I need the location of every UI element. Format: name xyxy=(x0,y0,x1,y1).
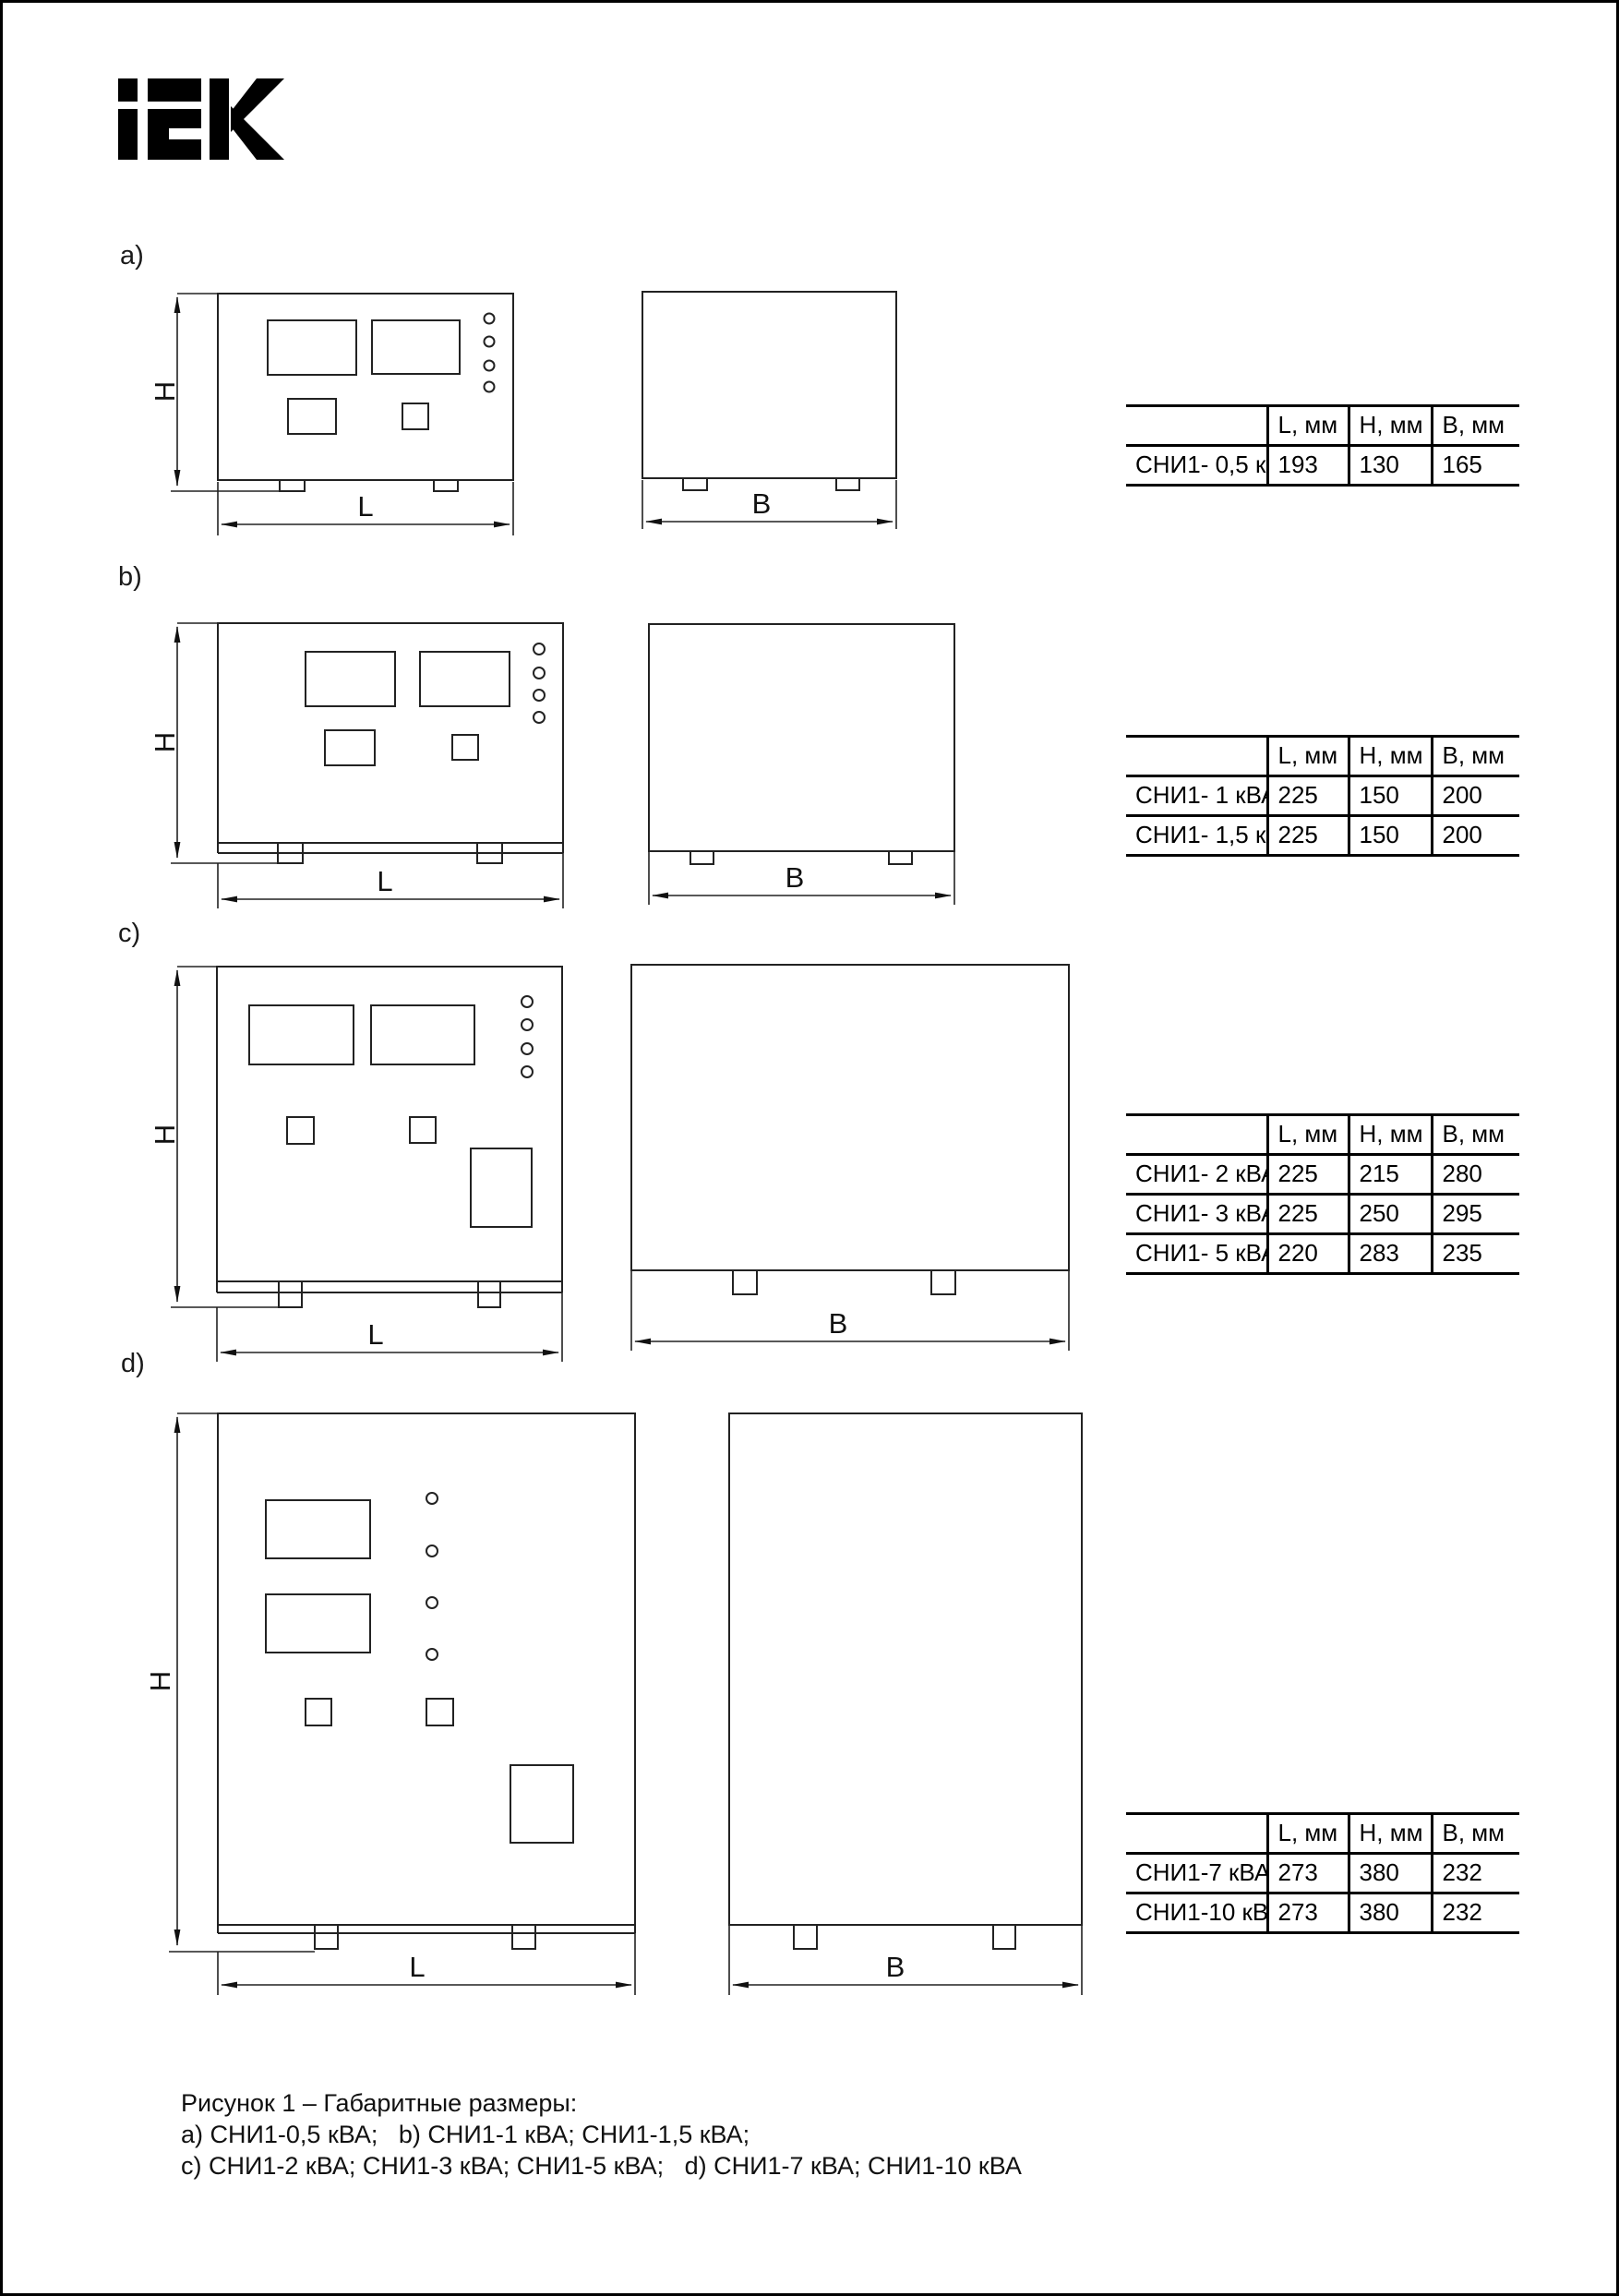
display-window xyxy=(371,1005,474,1064)
h-dimension xyxy=(169,1413,315,1952)
control-button xyxy=(452,735,478,760)
col-header-b: B, мм xyxy=(1432,406,1519,446)
cabinet-body xyxy=(631,965,1069,1270)
cabinet-base xyxy=(217,1281,562,1292)
table-row: СНИ1- 0,5 кВА 193 130 165 xyxy=(1126,446,1519,486)
value-b: 232 xyxy=(1432,1854,1519,1893)
display-window xyxy=(420,652,510,706)
model-name: СНИ1- 0,5 кВА xyxy=(1126,446,1267,486)
h-dim-label: H xyxy=(149,381,181,402)
col-header-h: H, мм xyxy=(1349,1115,1432,1155)
cabinet-body xyxy=(217,967,562,1281)
cabinet-foot xyxy=(931,1270,955,1294)
l-dimension xyxy=(217,1292,562,1362)
indicator-leds xyxy=(426,1493,438,1660)
cabinet-body xyxy=(218,623,563,843)
table-header-row: L, мм H, мм B, мм xyxy=(1126,406,1519,446)
value-l: 273 xyxy=(1267,1854,1349,1893)
model-name: СНИ1- 5 кВА xyxy=(1126,1234,1267,1274)
l-dimension xyxy=(218,1933,635,1995)
col-header-b: B, мм xyxy=(1432,1814,1519,1854)
value-l: 225 xyxy=(1267,1155,1349,1195)
model-name: СНИ1- 2 кВА xyxy=(1126,1155,1267,1195)
value-h: 130 xyxy=(1349,446,1432,486)
cabinet-foot xyxy=(315,1925,338,1949)
value-b: 295 xyxy=(1432,1195,1519,1234)
b-dimension xyxy=(729,1925,1082,1995)
cabinet-foot xyxy=(794,1925,817,1949)
dim-table-c: L, мм H, мм B, мм СНИ1- 2 кВА 225 215 28… xyxy=(1126,1113,1519,1275)
value-b: 200 xyxy=(1432,776,1519,816)
model-name: СНИ1-7 кВА xyxy=(1126,1854,1267,1893)
cabinet-foot xyxy=(836,478,859,490)
cabinet-foot xyxy=(434,480,458,491)
figure-d-side-view xyxy=(729,1413,1082,1995)
value-l: 193 xyxy=(1267,446,1349,486)
control-button xyxy=(410,1117,436,1143)
value-h: 380 xyxy=(1349,1854,1432,1893)
cabinet-foot xyxy=(683,478,707,490)
value-h: 250 xyxy=(1349,1195,1432,1234)
display-window xyxy=(249,1005,354,1064)
figure-c-side-view xyxy=(631,965,1069,1351)
value-h: 150 xyxy=(1349,776,1432,816)
figure-caption: Рисунок 1 – Габаритные размеры: а) СНИ1-… xyxy=(181,2087,1022,2182)
col-header-l: L, мм xyxy=(1267,406,1349,446)
cabinet-body xyxy=(729,1413,1082,1925)
value-b: 165 xyxy=(1432,446,1519,486)
dim-table-b: L, мм H, мм B, мм СНИ1- 1 кВА 225 150 20… xyxy=(1126,735,1519,857)
cabinet-body xyxy=(218,294,513,480)
table-row: СНИ1- 1 кВА 225 150 200 xyxy=(1126,776,1519,816)
table-header-row: L, мм H, мм B, мм xyxy=(1126,1115,1519,1155)
value-b: 232 xyxy=(1432,1893,1519,1933)
col-header-b: B, мм xyxy=(1432,737,1519,776)
value-h: 150 xyxy=(1349,816,1432,856)
caption-line-2: а) СНИ1-0,5 кВА; b) СНИ1-1 кВА; СНИ1-1,5… xyxy=(181,2119,1022,2150)
b-dim-label: B xyxy=(786,861,805,894)
l-dim-label: L xyxy=(377,865,392,897)
value-l: 225 xyxy=(1267,816,1349,856)
model-name: СНИ1- 3 кВА xyxy=(1126,1195,1267,1234)
cabinet-foot xyxy=(889,851,912,864)
cabinet-base xyxy=(218,1925,635,1933)
col-header-b: B, мм xyxy=(1432,1115,1519,1155)
corner-cell xyxy=(1126,1814,1267,1854)
dim-table-d: L, мм H, мм B, мм СНИ1-7 кВА 273 380 232… xyxy=(1126,1812,1519,1934)
connector-block xyxy=(471,1148,532,1227)
col-header-h: H, мм xyxy=(1349,406,1432,446)
figure-d-front-view xyxy=(169,1413,635,1995)
value-h: 380 xyxy=(1349,1893,1432,1933)
l-dim-label: L xyxy=(357,490,373,523)
h-dimension xyxy=(171,967,279,1307)
b-dimension xyxy=(631,1270,1069,1351)
h-dimension xyxy=(171,623,278,863)
cabinet-foot xyxy=(512,1925,535,1949)
b-dim-label: B xyxy=(829,1307,848,1340)
value-b: 280 xyxy=(1432,1155,1519,1195)
control-button xyxy=(402,403,428,429)
value-b: 235 xyxy=(1432,1234,1519,1274)
control-button xyxy=(306,1699,331,1725)
cabinet-base xyxy=(218,843,563,853)
value-l: 225 xyxy=(1267,1195,1349,1234)
l-dim-label: L xyxy=(409,1951,425,1983)
col-header-l: L, мм xyxy=(1267,1115,1349,1155)
h-dim-label: H xyxy=(144,1671,176,1691)
cabinet-foot xyxy=(280,480,305,491)
col-header-l: L, мм xyxy=(1267,737,1349,776)
corner-cell xyxy=(1126,1115,1267,1155)
value-l: 273 xyxy=(1267,1893,1349,1933)
cabinet-foot xyxy=(690,851,714,864)
col-header-h: H, мм xyxy=(1349,737,1432,776)
display-window xyxy=(306,652,395,706)
cabinet-foot xyxy=(478,1281,500,1307)
table-row: СНИ1-10 кВА 273 380 232 xyxy=(1126,1893,1519,1933)
value-l: 225 xyxy=(1267,776,1349,816)
model-name: СНИ1- 1,5 кВА xyxy=(1126,816,1267,856)
corner-cell xyxy=(1126,406,1267,446)
control-button xyxy=(426,1699,453,1725)
col-header-l: L, мм xyxy=(1267,1814,1349,1854)
cabinet-foot xyxy=(993,1925,1015,1949)
cabinet-body xyxy=(642,292,896,478)
connector-block xyxy=(510,1765,573,1843)
table-row: СНИ1- 5 кВА 220 283 235 xyxy=(1126,1234,1519,1274)
indicator-leds xyxy=(534,643,545,723)
display-window xyxy=(268,320,356,375)
control-button xyxy=(325,730,375,765)
control-button xyxy=(287,1117,314,1144)
model-name: СНИ1-10 кВА xyxy=(1126,1893,1267,1933)
value-h: 215 xyxy=(1349,1155,1432,1195)
model-name: СНИ1- 1 кВА xyxy=(1126,776,1267,816)
cabinet-body xyxy=(218,1413,635,1925)
indicator-leds xyxy=(485,314,495,392)
h-dim-label: H xyxy=(149,732,181,752)
display-window xyxy=(266,1500,370,1558)
dim-table-a: L, мм H, мм B, мм СНИ1- 0,5 кВА 193 130 … xyxy=(1126,404,1519,487)
caption-line-3: c) СНИ1-2 кВА; СНИ1-3 кВА; СНИ1-5 кВА; d… xyxy=(181,2150,1022,2182)
indicator-leds xyxy=(522,996,533,1077)
value-b: 200 xyxy=(1432,816,1519,856)
corner-cell xyxy=(1126,737,1267,776)
cabinet-foot xyxy=(733,1270,757,1294)
display-window xyxy=(372,320,460,374)
cabinet-foot xyxy=(279,1281,302,1307)
figure-c-front-view xyxy=(171,967,562,1362)
cabinet-body xyxy=(649,624,954,851)
figure-b-front-view xyxy=(171,623,563,908)
table-row: СНИ1- 1,5 кВА 225 150 200 xyxy=(1126,816,1519,856)
catalog-page: a) b) c) d) xyxy=(0,0,1619,2296)
l-dim-label: L xyxy=(367,1318,383,1351)
display-window xyxy=(266,1594,370,1653)
caption-line-1: Рисунок 1 – Габаритные размеры: xyxy=(181,2087,1022,2119)
table-header-row: L, мм H, мм B, мм xyxy=(1126,737,1519,776)
col-header-h: H, мм xyxy=(1349,1814,1432,1854)
h-dimension xyxy=(171,294,280,491)
h-dim-label: H xyxy=(149,1124,181,1145)
table-header-row: L, мм H, мм B, мм xyxy=(1126,1814,1519,1854)
b-dim-label: B xyxy=(752,487,772,520)
table-row: СНИ1- 3 кВА 225 250 295 xyxy=(1126,1195,1519,1234)
value-h: 283 xyxy=(1349,1234,1432,1274)
table-row: СНИ1-7 кВА 273 380 232 xyxy=(1126,1854,1519,1893)
value-l: 220 xyxy=(1267,1234,1349,1274)
control-button xyxy=(288,399,336,434)
b-dim-label: B xyxy=(886,1951,905,1983)
figure-a-front-view xyxy=(171,294,513,535)
table-row: СНИ1- 2 кВА 225 215 280 xyxy=(1126,1155,1519,1195)
